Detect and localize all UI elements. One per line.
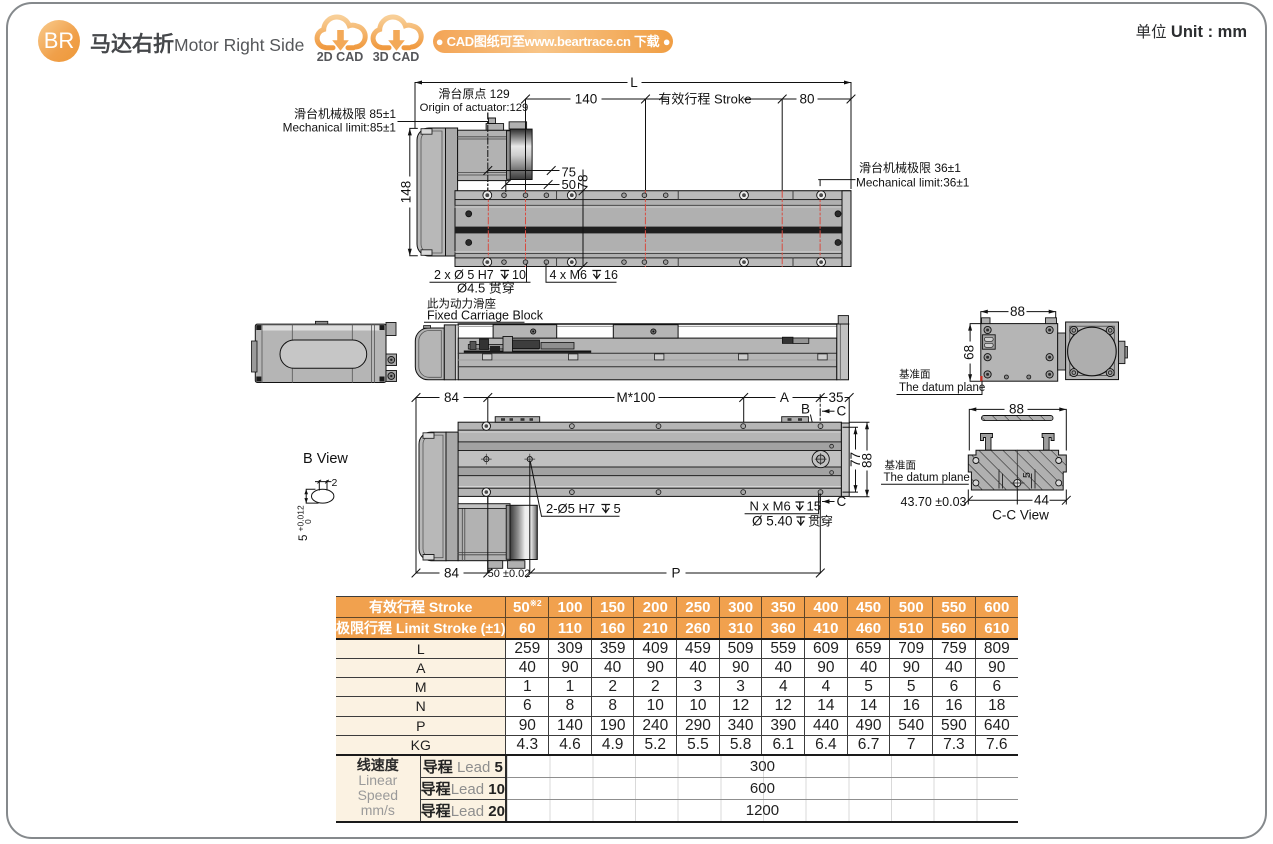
svg-text:35: 35 — [828, 390, 843, 405]
svg-text:43.70 ±0.03: 43.70 ±0.03 — [901, 495, 967, 509]
svg-text:5: 5 — [298, 535, 310, 541]
svg-text:50 ±0.02: 50 ±0.02 — [488, 568, 531, 580]
svg-text:C-C View: C-C View — [992, 508, 1049, 523]
svg-text:0: 0 — [303, 519, 313, 524]
svg-text:88: 88 — [860, 453, 875, 468]
svg-text:16: 16 — [604, 268, 618, 282]
svg-text:88: 88 — [1010, 304, 1025, 319]
svg-text:A: A — [780, 390, 789, 405]
svg-text:44: 44 — [1034, 493, 1050, 508]
svg-text:5: 5 — [614, 501, 621, 516]
svg-text:Mechanical limit:85±1: Mechanical limit:85±1 — [283, 121, 396, 135]
svg-text:Ø 5.40: Ø 5.40 — [752, 514, 793, 529]
svg-text:贯穿: 贯穿 — [808, 514, 833, 529]
svg-text:2-Ø5 H7: 2-Ø5 H7 — [546, 501, 595, 516]
svg-text:2: 2 — [332, 477, 338, 489]
svg-text:M*100: M*100 — [616, 390, 655, 405]
svg-text:The datum plane: The datum plane — [884, 472, 970, 484]
svg-text:80: 80 — [799, 92, 814, 107]
svg-text:Mechanical limit:36±1: Mechanical limit:36±1 — [856, 176, 969, 190]
svg-text:滑台机械极限 85±1: 滑台机械极限 85±1 — [294, 106, 396, 121]
svg-text:C: C — [837, 404, 847, 419]
svg-text:148: 148 — [399, 181, 414, 204]
svg-text:基准面: 基准面 — [899, 368, 931, 381]
svg-text:50: 50 — [562, 177, 576, 192]
svg-text:滑台机械极限 36±1: 滑台机械极限 36±1 — [859, 160, 961, 175]
svg-text:84: 84 — [444, 390, 460, 405]
svg-text:The datum plane: The datum plane — [899, 382, 985, 394]
svg-text:Ø4.5 贯穿: Ø4.5 贯穿 — [457, 281, 515, 296]
svg-text:有效行程 Stroke: 有效行程 Stroke — [658, 92, 751, 107]
svg-text:140: 140 — [575, 92, 598, 107]
svg-text:+0.012: +0.012 — [296, 505, 306, 532]
svg-text:88: 88 — [1009, 402, 1024, 417]
svg-text:84: 84 — [444, 565, 460, 580]
svg-text:B: B — [801, 402, 810, 417]
svg-text:基准面: 基准面 — [885, 459, 917, 472]
svg-text:68: 68 — [962, 345, 977, 360]
svg-text:L: L — [630, 75, 638, 90]
svg-text:Origin of actuator:129: Origin of actuator:129 — [420, 102, 529, 114]
svg-text:B View: B View — [303, 451, 348, 467]
svg-text:P: P — [671, 565, 680, 580]
svg-text:4 x M6: 4 x M6 — [550, 268, 588, 282]
svg-text:N x M6: N x M6 — [750, 499, 791, 514]
svg-text:Fixed Carriage Block: Fixed Carriage Block — [427, 308, 544, 322]
svg-text:滑台原点 129: 滑台原点 129 — [438, 86, 510, 101]
svg-text:78: 78 — [576, 174, 591, 189]
